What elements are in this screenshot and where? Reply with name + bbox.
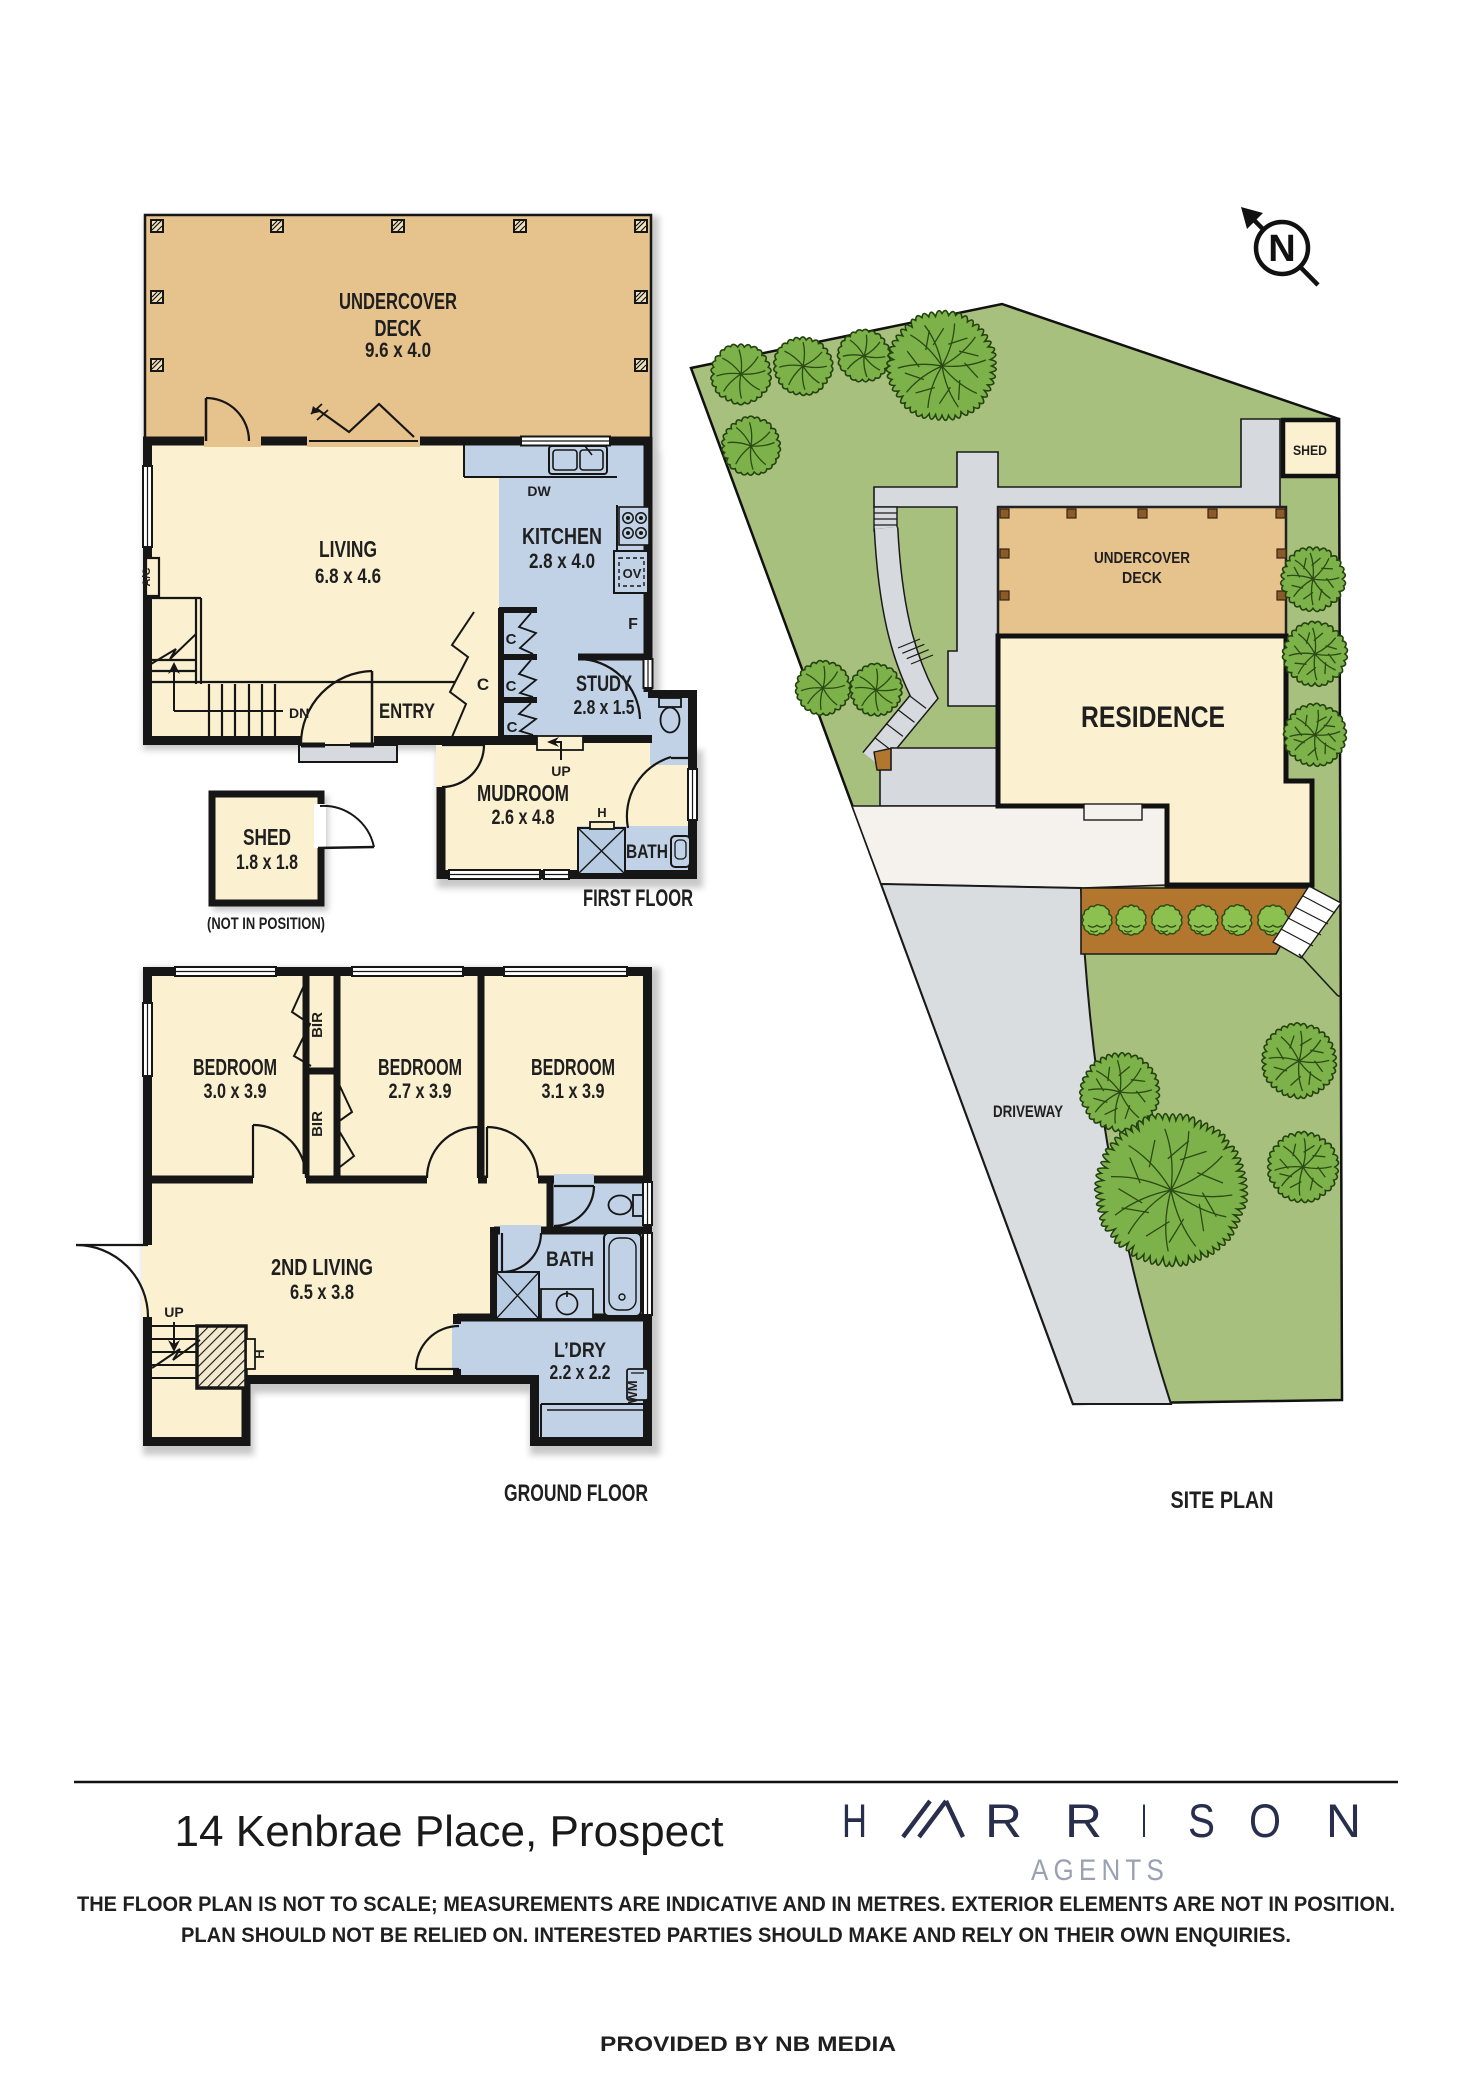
svg-text:(NOT IN POSITION): (NOT IN POSITION)	[207, 914, 325, 933]
svg-text:STUDY: STUDY	[576, 671, 632, 696]
svg-text:SHED: SHED	[243, 824, 291, 850]
svg-text:C: C	[477, 675, 489, 694]
svg-text:BEDROOM: BEDROOM	[378, 1054, 462, 1080]
svg-text:BIR: BIR	[309, 1111, 326, 1137]
svg-text:2.2 x 2.2: 2.2 x 2.2	[550, 1362, 611, 1384]
svg-text:N: N	[1326, 1794, 1361, 1847]
svg-text:N: N	[1268, 228, 1295, 270]
svg-text:2.7 x 3.9: 2.7 x 3.9	[389, 1080, 452, 1103]
svg-text:BEDROOM: BEDROOM	[193, 1054, 277, 1080]
svg-text:SITE PLAN: SITE PLAN	[1171, 1487, 1274, 1514]
svg-text:BIR: BIR	[309, 1012, 326, 1038]
svg-text:LIVING: LIVING	[319, 536, 377, 562]
svg-text:R: R	[1065, 1794, 1102, 1847]
svg-text:OV: OV	[623, 566, 642, 581]
svg-text:3.1 x 3.9: 3.1 x 3.9	[542, 1080, 605, 1103]
svg-text:F: F	[628, 616, 638, 633]
svg-text:S: S	[1188, 1794, 1215, 1847]
svg-text:AGENTS: AGENTS	[1031, 1854, 1169, 1887]
svg-text:UP: UP	[164, 1304, 183, 1320]
svg-text:DW: DW	[527, 483, 551, 499]
svg-text:C: C	[507, 719, 518, 736]
svg-text:DECK: DECK	[1122, 570, 1162, 587]
svg-text:UNDERCOVER: UNDERCOVER	[1094, 550, 1190, 567]
svg-text:SHED: SHED	[1293, 442, 1327, 458]
svg-text:I: I	[1141, 1794, 1147, 1847]
svg-text:L’DRY: L’DRY	[554, 1339, 606, 1362]
svg-text:2.6 x 4.8: 2.6 x 4.8	[492, 806, 555, 829]
svg-text:DN: DN	[289, 705, 309, 721]
svg-text:UP: UP	[551, 763, 570, 779]
svg-text:H: H	[597, 805, 606, 820]
svg-text:14 Kenbrae Place, Prospect: 14 Kenbrae Place, Prospect	[175, 1807, 724, 1856]
svg-text:FIRST FLOOR: FIRST FLOOR	[583, 885, 693, 912]
svg-text:1.8 x 1.8: 1.8 x 1.8	[236, 851, 298, 874]
svg-text:H: H	[252, 1349, 267, 1358]
svg-text:PLAN SHOULD NOT BE RELIED ON.: PLAN SHOULD NOT BE RELIED ON. INTERESTED…	[181, 1924, 1291, 1947]
svg-text:2.8 x 1.5: 2.8 x 1.5	[574, 697, 635, 719]
svg-text:6.8 x 4.6: 6.8 x 4.6	[315, 565, 381, 588]
svg-text:2.8 x 4.0: 2.8 x 4.0	[529, 550, 595, 573]
svg-text:KITCHEN: KITCHEN	[522, 523, 602, 549]
svg-text:BEDROOM: BEDROOM	[531, 1054, 615, 1080]
svg-text:MUDROOM: MUDROOM	[477, 780, 569, 806]
svg-text:O: O	[1249, 1794, 1281, 1847]
svg-text:2ND LIVING: 2ND LIVING	[271, 1254, 373, 1280]
svg-text:PROVIDED BY NB MEDIA: PROVIDED BY NB MEDIA	[600, 2033, 896, 2056]
svg-text:WM: WM	[625, 1380, 640, 1403]
svg-text:DECK: DECK	[375, 315, 422, 341]
svg-text:9.6 x 4.0: 9.6 x 4.0	[365, 339, 431, 362]
svg-text:RESIDENCE: RESIDENCE	[1081, 701, 1225, 734]
svg-text:THE FLOOR PLAN IS NOT TO SCALE: THE FLOOR PLAN IS NOT TO SCALE; MEASUREM…	[77, 1893, 1395, 1916]
svg-text:UNDERCOVER: UNDERCOVER	[339, 288, 457, 314]
svg-text:DRIVEWAY: DRIVEWAY	[993, 1102, 1064, 1121]
svg-text:A/C: A/C	[141, 567, 153, 586]
svg-text:GROUND FLOOR: GROUND FLOOR	[504, 1480, 648, 1507]
svg-text:C: C	[506, 631, 517, 648]
svg-text:R: R	[985, 1794, 1022, 1847]
svg-text:BATH: BATH	[626, 842, 668, 863]
svg-text:ENTRY: ENTRY	[379, 700, 435, 723]
svg-text:H: H	[842, 1794, 867, 1847]
svg-text:BATH: BATH	[546, 1248, 594, 1271]
svg-text:C: C	[506, 678, 517, 695]
svg-text:6.5 x 3.8: 6.5 x 3.8	[290, 1281, 354, 1304]
svg-text:3.0 x 3.9: 3.0 x 3.9	[204, 1080, 267, 1103]
